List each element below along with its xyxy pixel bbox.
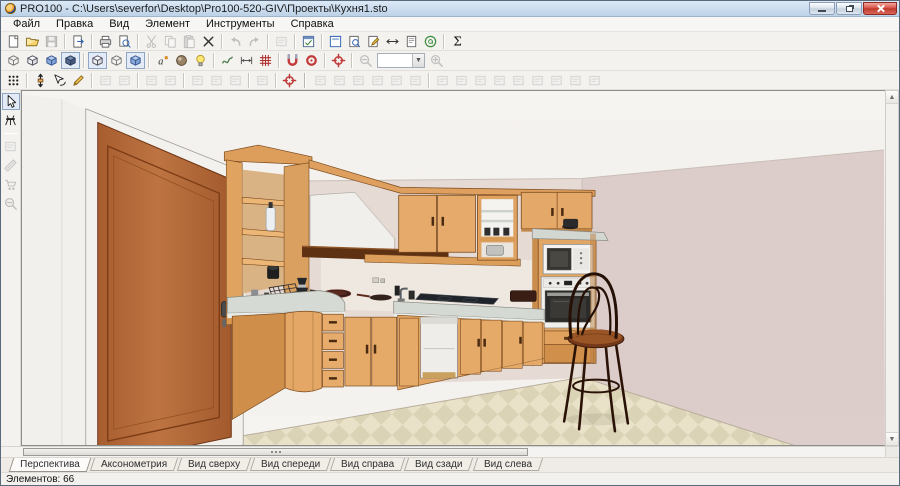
raise-step-icon — [228, 73, 243, 88]
ruler-tool-button — [2, 157, 20, 174]
magnifier-tool-button — [2, 195, 20, 212]
pointer-tool-button[interactable] — [2, 93, 20, 110]
scroll-up-arrow[interactable]: ▲ — [886, 91, 898, 104]
toolbar-separator — [213, 53, 215, 68]
ungroup-button — [115, 72, 134, 89]
render-quality-button[interactable] — [172, 52, 191, 69]
toolbar-separator — [221, 34, 223, 49]
grid-overlay-button[interactable] — [256, 52, 275, 69]
render-quality-icon — [174, 53, 189, 68]
toolbar-separator — [443, 34, 445, 49]
shadows-icon — [220, 53, 235, 68]
arrange-tool-5-icon — [511, 73, 526, 88]
report-icon — [71, 34, 86, 49]
menu-item-4[interactable]: Элемент — [137, 18, 198, 30]
titlebar: PRO100 - C:\Users\severfor\Desktop\Pro10… — [1, 1, 899, 17]
pro100-window: PRO100 - C:\Users\severfor\Desktop\Pro10… — [0, 0, 900, 486]
scroll-down-arrow[interactable]: ▼ — [886, 432, 898, 445]
toolbar-separator — [428, 73, 430, 88]
arrange-tool-6-icon — [530, 73, 545, 88]
dimensions-overlay-icon — [239, 53, 254, 68]
arrange-tool-5-button — [509, 72, 528, 89]
toolbar-separator — [278, 53, 280, 68]
arrange-tool-4-icon — [492, 73, 507, 88]
toolbar-separator — [83, 53, 85, 68]
dimensions-overlay-button[interactable] — [237, 52, 256, 69]
arrange-tool-1-button — [433, 72, 452, 89]
copy-icon — [163, 34, 178, 49]
horizontal-scrollbar — [1, 446, 899, 457]
redo-button — [245, 33, 264, 50]
align-tool-2-button — [330, 72, 349, 89]
panel-library-button[interactable] — [326, 33, 345, 50]
design-viewport[interactable] — [21, 90, 885, 446]
panel-preview-button[interactable] — [345, 33, 364, 50]
minimize-icon — [818, 10, 826, 12]
rotate-step-icon — [190, 73, 205, 88]
panel-properties-button[interactable] — [364, 33, 383, 50]
edit-shape-icon — [71, 73, 86, 88]
arrange-tool-9-icon — [587, 73, 602, 88]
align-tool-4-icon — [370, 73, 385, 88]
panel-preview-icon — [347, 34, 362, 49]
center-selection-button[interactable] — [329, 52, 348, 69]
undo-button — [226, 33, 245, 50]
trolley-tool-icon — [3, 177, 18, 192]
open-file-icon — [25, 34, 40, 49]
view-colored-button[interactable] — [42, 52, 61, 69]
panel-report-icon — [404, 34, 419, 49]
open-file-button[interactable] — [23, 33, 42, 50]
toolbar-separator — [91, 34, 93, 49]
show-contours-icon — [90, 53, 105, 68]
menu-item-3[interactable]: Вид — [101, 18, 137, 30]
view-tab-label: Вид спереди — [261, 459, 320, 470]
properties-dialog-icon — [301, 34, 316, 49]
close-button[interactable] — [863, 2, 897, 15]
show-outline-icon — [128, 53, 143, 68]
menu-item-6[interactable]: Справка — [283, 18, 342, 30]
zoom-out-icon — [358, 53, 373, 68]
toolbar-separator — [324, 53, 326, 68]
redo-icon — [247, 34, 262, 49]
element-count: Элементов: 66 — [6, 474, 74, 485]
box-tool-icon — [3, 139, 18, 154]
selection-filter-icon — [6, 73, 21, 88]
view-sketch-button[interactable] — [23, 52, 42, 69]
view-tab-label: Перспектива — [20, 459, 80, 470]
arrange-tool-4-button — [490, 72, 509, 89]
hscroll-track[interactable] — [21, 447, 885, 457]
show-edges-button[interactable] — [107, 52, 126, 69]
close-icon — [876, 4, 885, 13]
toolbar-separator — [275, 73, 277, 88]
toolbar-separator — [294, 34, 296, 49]
show-edges-icon — [109, 53, 124, 68]
copy-button — [161, 33, 180, 50]
panel-properties-icon — [366, 34, 381, 49]
print-preview-icon — [117, 34, 132, 49]
delete-icon — [201, 34, 216, 49]
price-list-button[interactable]: Σ — [448, 33, 467, 50]
tool-palette — [1, 90, 21, 446]
move-down-level-icon — [163, 73, 178, 88]
arrange-tool-6-button — [528, 72, 547, 89]
align-tool-3-button — [349, 72, 368, 89]
move-element-icon — [33, 73, 48, 88]
align-tool-1-icon — [313, 73, 328, 88]
view-textured-icon — [63, 53, 78, 68]
menu-item-1[interactable]: Файл — [5, 18, 48, 30]
move-up-level-button — [142, 72, 161, 89]
arrange-tool-7-button — [547, 72, 566, 89]
move-element-button[interactable] — [31, 72, 50, 89]
print-preview-button[interactable] — [115, 33, 134, 50]
cut-icon — [144, 34, 159, 49]
insert-element-icon — [274, 34, 289, 49]
view-tabs: ПерспективаАксонометрияВид сверхуВид спе… — [1, 457, 899, 472]
save-file-icon — [44, 34, 59, 49]
view-tab-label: Вид сзади — [415, 459, 462, 470]
center-view-icon — [282, 73, 297, 88]
view-tab-4[interactable]: Вид спереди — [250, 458, 331, 471]
arrange-tool-3-icon — [473, 73, 488, 88]
align-tool-1-button — [311, 72, 330, 89]
toolbar-separator — [183, 73, 185, 88]
arrange-tool-9-button — [585, 72, 604, 89]
lighting-icon — [193, 53, 208, 68]
align-tool-3-icon — [351, 73, 366, 88]
menu-item-2[interactable]: Правка — [48, 18, 101, 30]
kitchen-3d-render — [22, 91, 885, 445]
zoom-in-button — [427, 52, 446, 69]
view-wireframe-button[interactable] — [4, 52, 23, 69]
group-button — [96, 72, 115, 89]
restore-icon — [846, 6, 853, 12]
toolbar-separator — [91, 73, 93, 88]
price-list-icon: Σ — [450, 34, 465, 49]
view-colored-icon — [44, 53, 59, 68]
align-tool-6-button — [406, 72, 425, 89]
toolbar-separator — [304, 73, 306, 88]
paste-icon — [182, 34, 197, 49]
panel-info-button[interactable] — [421, 33, 440, 50]
toolbar-separator — [4, 133, 18, 134]
arrange-tool-2-icon — [454, 73, 469, 88]
toolbar-row-1: Σ — [1, 32, 899, 51]
arrange-tool-1-icon — [435, 73, 450, 88]
snap-to-grid-button[interactable] — [302, 52, 321, 69]
arrange-tool-7-icon — [549, 73, 564, 88]
walkthrough-tool-icon — [3, 113, 18, 128]
rotate-element-icon — [52, 73, 67, 88]
view-tab-5[interactable]: Вид справа — [330, 458, 405, 471]
view-textured-button[interactable] — [61, 52, 80, 69]
svg-text:Σ: Σ — [453, 34, 462, 48]
corner-join-button — [253, 72, 272, 89]
zoom-level-combo[interactable]: ▼ — [377, 53, 425, 68]
restore-button[interactable] — [836, 2, 862, 15]
cut-button — [142, 33, 161, 50]
arrange-tool-2-button — [452, 72, 471, 89]
panel-info-icon — [423, 34, 438, 49]
corner-join-icon — [255, 73, 270, 88]
view-tab-label: Аксонометрия — [101, 459, 167, 470]
view-tab-2[interactable]: Аксонометрия — [90, 458, 178, 471]
snap-to-objects-icon — [285, 53, 300, 68]
statusbar: Элементов: 66 — [1, 472, 899, 485]
move-step-icon — [209, 73, 224, 88]
raise-step-button — [226, 72, 245, 89]
grid-overlay-icon — [258, 53, 273, 68]
save-file-button — [42, 33, 61, 50]
minimize-button[interactable] — [809, 2, 835, 15]
align-tool-6-icon — [408, 73, 423, 88]
center-selection-icon — [331, 53, 346, 68]
app-logo-icon — [5, 3, 16, 14]
toolbar-row-3 — [1, 71, 899, 90]
view-tab-3[interactable]: Вид сверху — [177, 458, 251, 471]
menu-item-5[interactable]: Инструменты — [198, 18, 283, 30]
align-tool-5-button — [387, 72, 406, 89]
view-tab-label: Вид сверху — [188, 459, 240, 470]
toolbar-separator — [137, 73, 139, 88]
walkthrough-tool-button[interactable] — [2, 112, 20, 129]
rotate-element-button[interactable] — [50, 72, 69, 89]
align-tool-2-icon — [332, 73, 347, 88]
toolbar-separator — [267, 34, 269, 49]
paste-button — [180, 33, 199, 50]
zoom-out-button — [356, 52, 375, 69]
center-view-button[interactable] — [280, 72, 299, 89]
report-button[interactable] — [69, 33, 88, 50]
auto-label-button[interactable]: a — [153, 52, 172, 69]
view-tab-7[interactable]: Вид слева — [473, 458, 543, 471]
ruler-tool-icon — [3, 158, 18, 173]
undo-icon — [228, 34, 243, 49]
arrange-tool-3-button — [471, 72, 490, 89]
lighting-button[interactable] — [191, 52, 210, 69]
print-button[interactable] — [96, 33, 115, 50]
selection-filter-button[interactable] — [4, 72, 23, 89]
panel-dimensions-button[interactable] — [383, 33, 402, 50]
window-title: PRO100 - C:\Users\severfor\Desktop\Pro10… — [20, 3, 805, 15]
view-tab-6[interactable]: Вид сзади — [404, 458, 474, 471]
toolbar-separator — [137, 34, 139, 49]
toolbar-separator — [64, 34, 66, 49]
toolbar-separator — [26, 73, 28, 88]
new-file-icon — [6, 34, 21, 49]
show-contours-button[interactable] — [88, 52, 107, 69]
toolbar-separator — [321, 34, 323, 49]
align-tool-4-button — [368, 72, 387, 89]
panel-dimensions-icon — [385, 34, 400, 49]
view-tab-1[interactable]: Перспектива — [9, 458, 91, 472]
toolbar-separator — [351, 53, 353, 68]
toolbar-separator — [148, 53, 150, 68]
arrange-tool-8-icon — [568, 73, 583, 88]
properties-dialog-button[interactable] — [299, 33, 318, 50]
shadows-button[interactable] — [218, 52, 237, 69]
show-outline-button[interactable] — [126, 52, 145, 69]
dropdown-arrow-icon[interactable]: ▼ — [412, 54, 424, 67]
rotate-step-button — [188, 72, 207, 89]
vertical-scrollbar[interactable]: ▲ ▼ — [885, 90, 899, 446]
box-tool-button — [2, 138, 20, 155]
print-icon — [98, 34, 113, 49]
align-tool-5-icon — [389, 73, 404, 88]
insert-element-button — [272, 33, 291, 50]
snap-to-grid-icon — [304, 53, 319, 68]
group-icon — [98, 73, 113, 88]
pointer-tool-icon — [3, 94, 18, 109]
delete-button[interactable] — [199, 33, 218, 50]
view-tab-label: Вид справа — [341, 459, 394, 470]
auto-label-icon: a — [155, 53, 170, 68]
move-down-level-button — [161, 72, 180, 89]
view-wireframe-icon — [6, 53, 21, 68]
panel-report-button[interactable] — [402, 33, 421, 50]
toolbar-separator — [248, 73, 250, 88]
ungroup-icon — [117, 73, 132, 88]
arrange-tool-8-button — [566, 72, 585, 89]
trolley-tool-button — [2, 176, 20, 193]
magnifier-tool-icon — [3, 196, 18, 211]
panel-library-icon — [328, 34, 343, 49]
zoom-in-icon — [429, 53, 444, 68]
edit-shape-button[interactable] — [69, 72, 88, 89]
scrollbar-corner — [885, 447, 899, 457]
hscroll-thumb[interactable] — [23, 448, 528, 456]
new-file-button[interactable] — [4, 33, 23, 50]
scrollbar-spacer — [1, 447, 21, 457]
svg-text:a: a — [158, 56, 163, 67]
toolbar-row-2: a▼ — [1, 51, 899, 71]
move-step-button — [207, 72, 226, 89]
view-tab-label: Вид слева — [484, 459, 532, 470]
move-up-level-icon — [144, 73, 159, 88]
snap-to-objects-button[interactable] — [283, 52, 302, 69]
menubar: ФайлПравкаВидЭлементИнструментыСправка — [1, 17, 899, 32]
view-sketch-icon — [25, 53, 40, 68]
